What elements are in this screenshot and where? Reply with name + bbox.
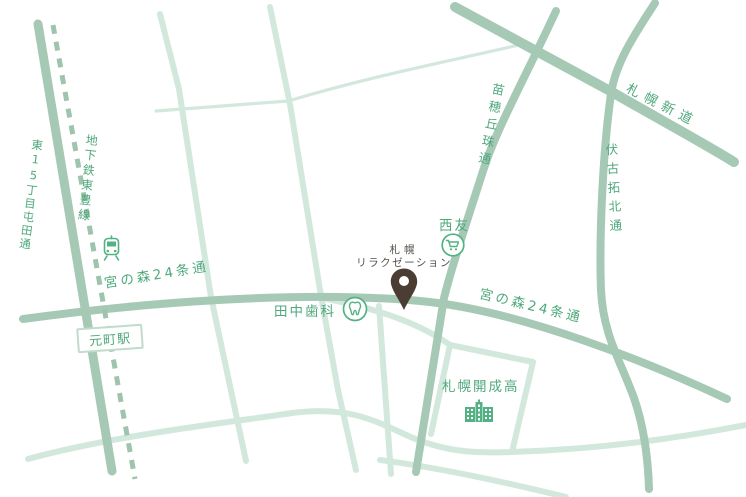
train-icon bbox=[100, 235, 123, 262]
road-light-bottom-diagonal bbox=[380, 460, 566, 497]
road-light-thin-connector bbox=[156, 44, 523, 111]
destination-label-line1: 札幌 bbox=[339, 244, 469, 257]
destination-label: 札幌 リラクゼーション bbox=[339, 244, 469, 270]
road-light-vertical-1 bbox=[160, 14, 246, 461]
road-light-vertical-3 bbox=[379, 306, 391, 474]
motomachi-station-label: 元町駅 bbox=[76, 324, 144, 354]
kaisei-high-label: 札幌開成高 bbox=[442, 375, 520, 395]
access-map: 東15丁目屯田通 地下鉄東豊線 宮の森24条通 宮の森24条通 苗穂丘珠通 札幌… bbox=[0, 0, 746, 497]
seiyu-label: 西友 bbox=[439, 214, 470, 234]
tanaka-dental-label: 田中歯科 bbox=[274, 300, 336, 320]
location-pin-icon bbox=[390, 268, 418, 313]
school-building-icon bbox=[464, 398, 494, 423]
tooth-icon bbox=[342, 296, 368, 322]
road-fushiko-takuhoku bbox=[600, 3, 655, 489]
road-light-vertical-2 bbox=[270, 7, 356, 470]
